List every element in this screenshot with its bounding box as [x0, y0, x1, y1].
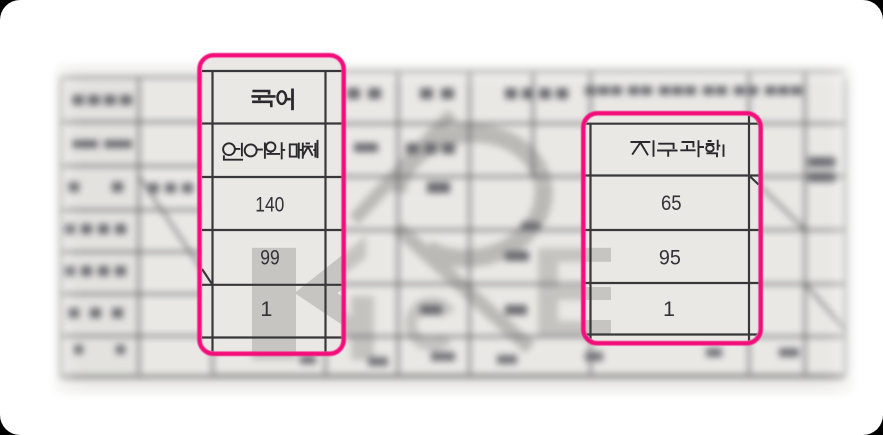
- svg-text:1: 1: [663, 297, 675, 321]
- svg-text:95: 95: [659, 245, 681, 269]
- svg-text:65: 65: [661, 191, 682, 215]
- svg-text:1: 1: [260, 297, 272, 321]
- svg-text:99: 99: [260, 246, 280, 270]
- svg-text:140: 140: [255, 192, 284, 216]
